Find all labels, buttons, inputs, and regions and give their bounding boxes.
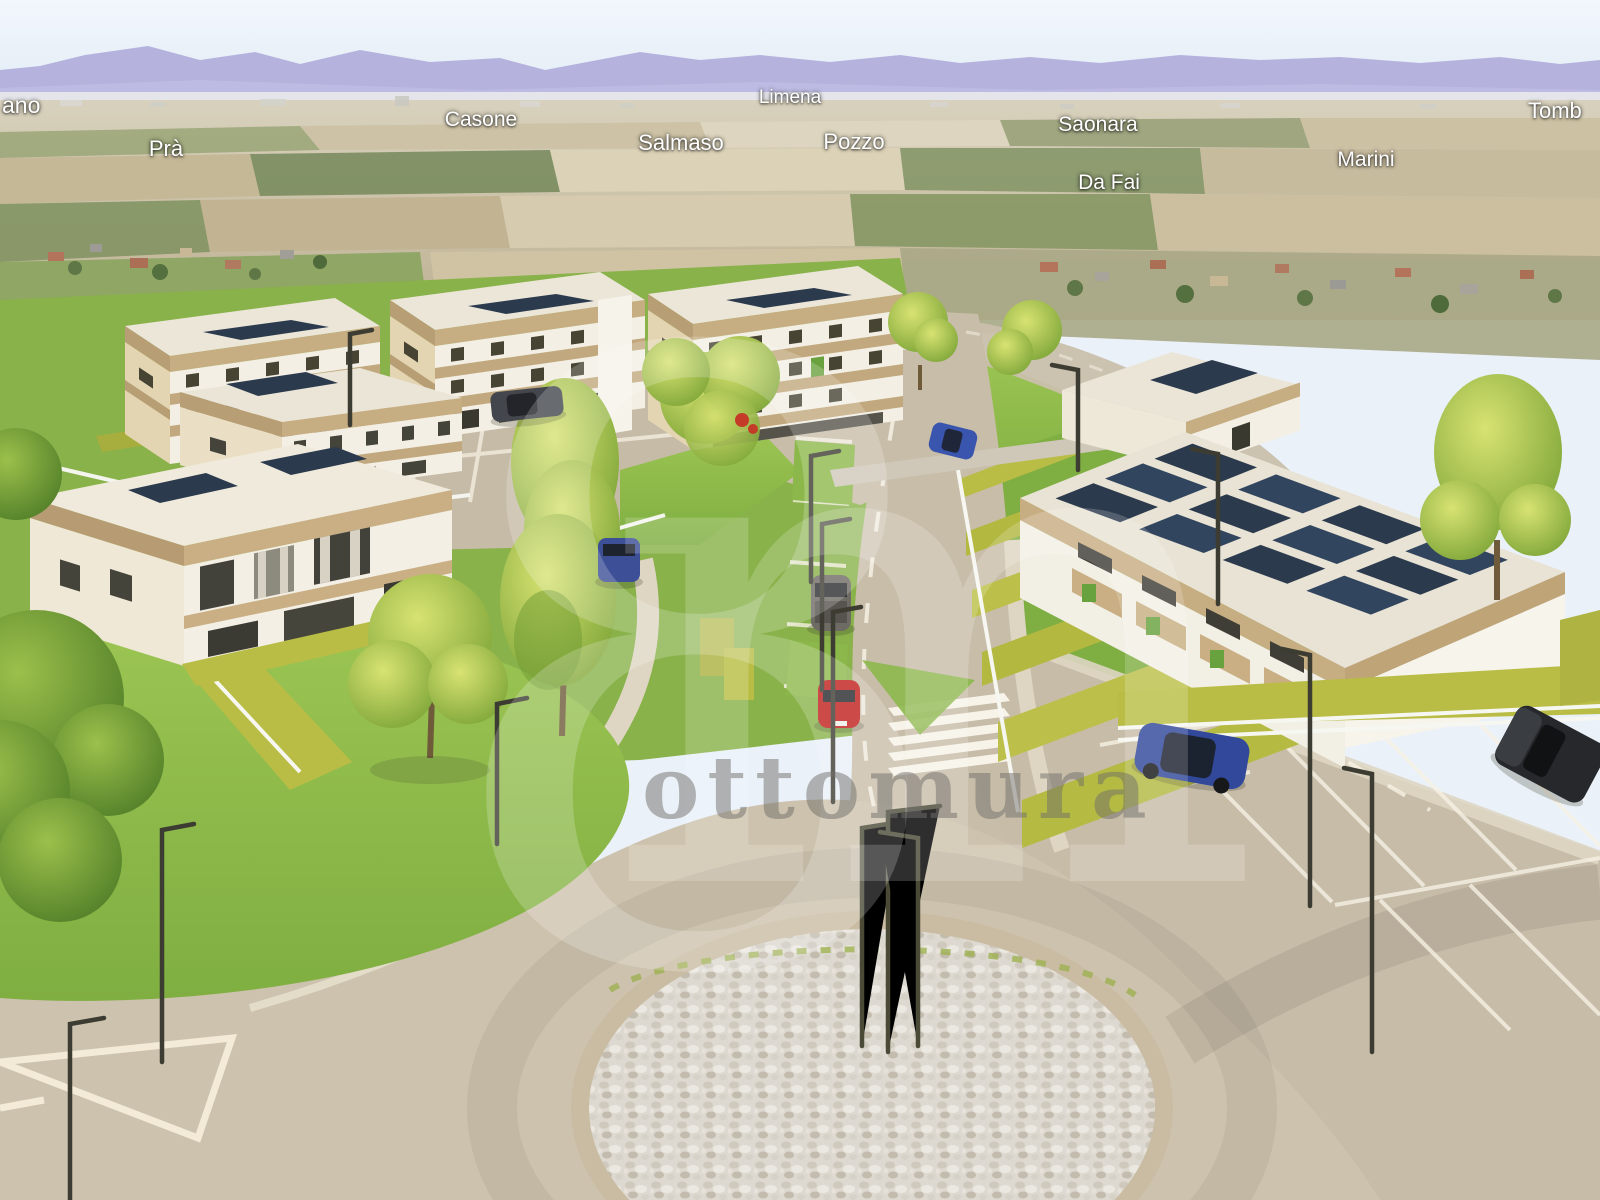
render-viewport: 8 m ottomura ano Prà Casone Salmaso Lime… xyxy=(0,0,1600,1200)
hedge-block-b xyxy=(724,648,754,700)
car-van-blue-parked xyxy=(595,538,643,589)
aerial-render-scene xyxy=(0,0,1600,1200)
